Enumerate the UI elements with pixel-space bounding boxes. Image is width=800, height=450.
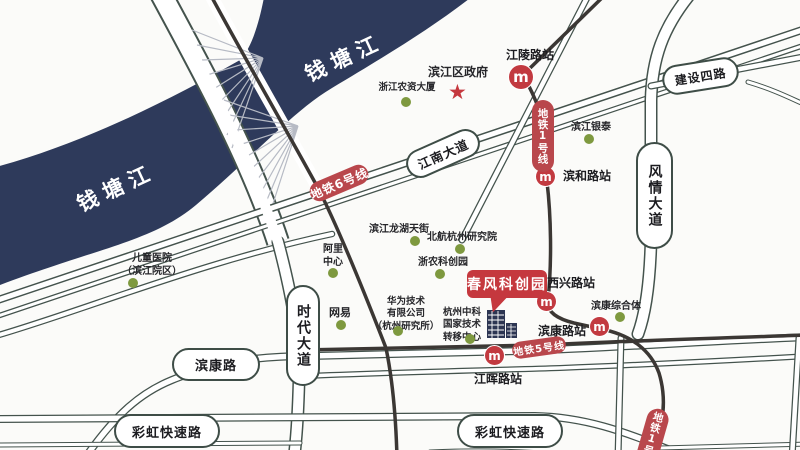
road-pill-fengqing: 风情大道 xyxy=(636,142,673,249)
station-label-jiangling: 江陵路站 xyxy=(490,48,570,64)
poi-label-district-government: 滨江区政府 xyxy=(408,65,508,81)
poi-label-zhenong: 浙农科创园 xyxy=(406,256,480,269)
poi-label-ali-center: 阿里 中心 xyxy=(316,243,350,269)
poi-label-binkang-complex: 滨康综合体 xyxy=(578,300,654,313)
road-pill-shidai: 时代大道 xyxy=(286,285,320,386)
metro-station-icon-binkang: m xyxy=(590,317,609,336)
poi-dot-ali-center xyxy=(328,268,338,278)
poi-dot-children-hospital xyxy=(128,278,138,288)
poi-label-children-hospital: 儿童医院 （滨江院区） xyxy=(102,252,202,278)
poi-label-yintai: 滨江银泰 xyxy=(558,121,624,134)
poi-label-netease: 网易 xyxy=(318,306,362,320)
government-star-icon: ★ xyxy=(448,82,467,103)
poi-dot-beihang xyxy=(455,244,465,254)
road-pill-binkang: 滨康路 xyxy=(172,348,260,381)
highlight-callout-tail-icon xyxy=(488,295,507,314)
highlight-callout: 春风科创园 xyxy=(467,270,547,298)
road-pill-caihong-left: 彩虹快速路 xyxy=(114,414,220,448)
poi-dot-huawei xyxy=(393,326,403,336)
poi-dot-yintai xyxy=(584,134,594,144)
road-pill-caihong-right: 彩虹快速路 xyxy=(457,414,563,448)
poi-dot-zhongke xyxy=(465,334,475,344)
station-label-binhe: 滨和路站 xyxy=(553,169,621,185)
metro-line1-badge-top: 地铁1号线 xyxy=(532,100,554,172)
poi-dot-netease xyxy=(336,320,346,330)
poi-dot-binkang-complex xyxy=(615,312,625,322)
metro-station-icon-jiangling: m xyxy=(509,65,533,89)
map-stage: 钱塘江 钱塘江 滨江区政府 ★ 江陵路站 m m 滨和路站 西兴路站 m 滨康路… xyxy=(0,0,800,450)
poi-dot-nongzi xyxy=(401,97,411,107)
poi-dot-zhenong xyxy=(435,269,445,279)
poi-label-nongzi: 浙江农资大厦 xyxy=(362,82,452,94)
poi-dot-longhu xyxy=(410,236,420,246)
station-label-jianghui: 江晖路站 xyxy=(462,372,534,388)
poi-label-beihang: 北航杭州研究院 xyxy=(412,231,512,244)
poi-label-zhongke: 杭州中科 国家技术 转移中心 xyxy=(432,307,492,344)
metro-station-icon-jianghui: m xyxy=(485,346,504,365)
